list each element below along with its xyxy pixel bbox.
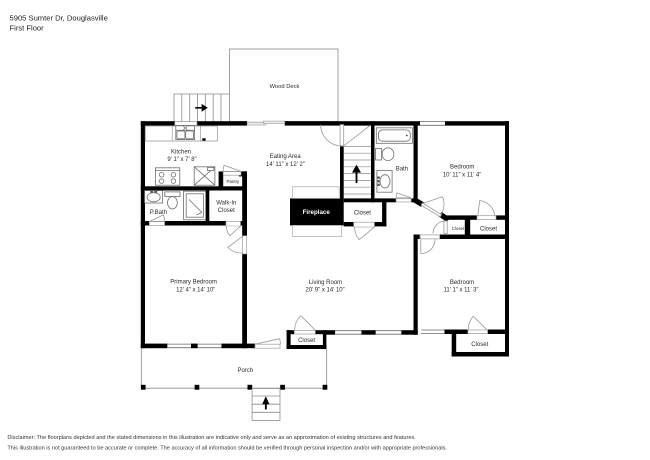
svg-text:Pantry: Pantry	[227, 179, 240, 184]
svg-text:11’ 1” x 11’ 3”: 11’ 1” x 11’ 3”	[443, 287, 478, 293]
svg-text:Wood Deck: Wood Deck	[270, 84, 300, 90]
svg-text:Bedroom: Bedroom	[450, 280, 474, 286]
svg-text:Eating Area: Eating Area	[270, 154, 302, 160]
svg-text:P.Bath: P.Bath	[150, 210, 167, 216]
svg-text:Disclaimer: The floorplans dep: Disclaimer: The floorplans depicted and …	[7, 435, 416, 441]
svg-text:Closet: Closet	[480, 226, 497, 232]
svg-text:Closet: Closet	[354, 211, 371, 217]
svg-text:Closet: Closet	[218, 208, 235, 214]
svg-text:Primary Bedroom: Primary Bedroom	[170, 280, 217, 286]
svg-text:First Floor: First Floor	[10, 24, 45, 33]
svg-text:Living Room: Living Room	[309, 280, 342, 286]
svg-text:Walk-In: Walk-In	[216, 200, 236, 206]
svg-text:Bedroom: Bedroom	[450, 165, 474, 171]
svg-text:Porch: Porch	[237, 368, 253, 374]
svg-text:9’ 1” x 7’ 8”: 9’ 1” x 7’ 8”	[167, 157, 196, 163]
svg-text:20’ 9” x 14’ 10”: 20’ 9” x 14’ 10”	[305, 287, 344, 293]
svg-text:14’ 11” x 12’ 2”: 14’ 11” x 12’ 2”	[266, 162, 305, 168]
svg-text:Kitchen: Kitchen	[171, 149, 191, 155]
svg-text:5905 Sumter Dr, Douglasville: 5905 Sumter Dr, Douglasville	[10, 14, 108, 23]
svg-text:Fireplace: Fireplace	[303, 209, 331, 216]
svg-text:Bath: Bath	[396, 167, 408, 173]
svg-text:10’ 11” x 11’ 4”: 10’ 11” x 11’ 4”	[443, 173, 481, 179]
svg-text:Closet: Closet	[471, 342, 488, 348]
svg-text:Closet: Closet	[452, 226, 465, 231]
svg-text:Closet: Closet	[298, 338, 315, 344]
svg-text:This illustration is not guara: This illustration is not guaranteed to b…	[7, 445, 447, 451]
svg-text:12’ 4” x 14’ 10”: 12’ 4” x 14’ 10”	[176, 287, 215, 293]
